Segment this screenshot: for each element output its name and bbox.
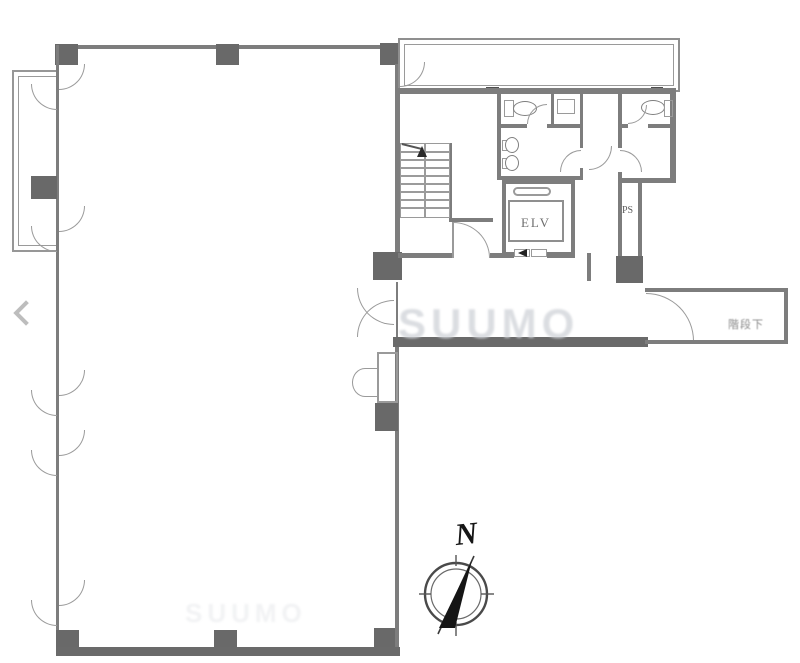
wall-elv-right (571, 180, 575, 258)
pillar (380, 43, 400, 65)
wall-entry-bottom (645, 340, 788, 344)
chevron-left-icon (13, 300, 38, 325)
door-arc (560, 150, 581, 172)
elv-door-arrow-icon (518, 249, 527, 257)
elv-counterweight (513, 187, 551, 196)
stair-up-arrow-icon (417, 146, 427, 157)
wall (497, 124, 527, 128)
window-casement-arc (31, 390, 57, 416)
window-casement-arc (59, 430, 85, 456)
wall (620, 124, 628, 128)
pillar (31, 176, 57, 199)
toilet-tank (664, 100, 673, 117)
pipe-shaft-label: PS (622, 205, 633, 216)
wall-entry-top (645, 288, 788, 292)
door-arc (628, 105, 647, 124)
elevator-cab: ELV (508, 200, 564, 242)
pillar (214, 630, 237, 647)
wall-entry-right (784, 288, 788, 344)
wall-stub (587, 253, 591, 281)
pillar (375, 403, 398, 431)
wall-elv-left (502, 180, 506, 258)
wall-corridor-bottom (393, 337, 648, 347)
wall (618, 172, 622, 183)
wall-corridor-top (398, 253, 452, 258)
watermark: SUUMO (185, 598, 307, 629)
wall (648, 124, 673, 128)
door-hinge-line (396, 282, 398, 338)
wall (547, 124, 583, 128)
wall-stall-divider (551, 93, 554, 124)
wall (580, 90, 583, 148)
door-arc (352, 368, 378, 397)
floor-plan-image: ELV PS 階段下 SUUMO SUUMO N (0, 0, 800, 663)
wall-bottom (56, 647, 400, 656)
pillar (56, 630, 79, 647)
window-casement-arc (31, 450, 57, 476)
wall-left (56, 45, 59, 650)
wall-niche (377, 352, 398, 403)
elevator-label: ELV (510, 215, 562, 231)
window-casement-arc (59, 64, 85, 90)
wall (618, 88, 622, 148)
wall-ps-left (618, 183, 622, 258)
wall-elv-top (502, 180, 575, 184)
elv-door-panel (531, 249, 547, 257)
wall-corridor-top (490, 253, 506, 258)
wall (497, 90, 501, 180)
urinal (505, 137, 519, 153)
door-arc (453, 222, 490, 258)
window-casement-arc (59, 580, 85, 606)
window-casement-arc (59, 370, 85, 396)
door-arc (620, 150, 642, 172)
wall-ps-right (638, 183, 642, 258)
door-arc (589, 146, 612, 170)
compass-icon (418, 550, 498, 642)
wall-core-top (398, 88, 676, 94)
urinal (505, 155, 519, 171)
pillar (616, 256, 643, 283)
under-stairs-label: 階段下 (728, 316, 764, 332)
door-arc (646, 293, 694, 341)
window-casement-arc (59, 206, 85, 232)
compass-north-label: N (453, 515, 479, 553)
prev-image-button[interactable] (8, 293, 42, 333)
window-casement-arc (31, 600, 57, 626)
wall (620, 178, 676, 183)
washbasin (557, 99, 575, 114)
pillar (216, 44, 239, 65)
balcony-inner (404, 44, 674, 86)
wall-elv-bottom (547, 252, 575, 258)
